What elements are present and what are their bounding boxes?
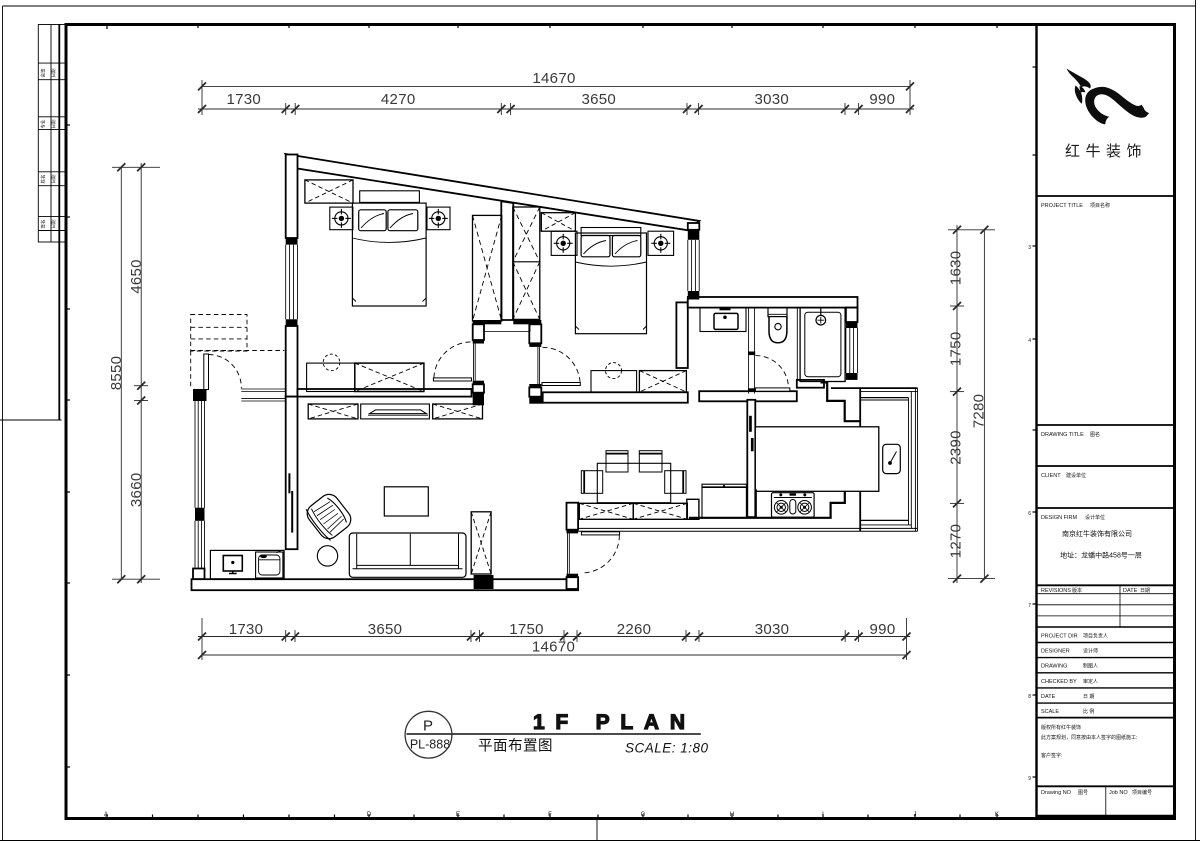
svg-text:项目编号: 项目编号 [1132, 789, 1152, 796]
svg-text:4270: 4270 [381, 91, 416, 108]
svg-text:项目负责人: 项目负责人 [1083, 633, 1108, 640]
svg-text:1750: 1750 [948, 332, 965, 367]
svg-text:990: 990 [869, 91, 895, 108]
svg-text:2390: 2390 [948, 430, 965, 465]
svg-text:日 期: 日 期 [1083, 694, 1094, 700]
svg-text:审定人: 审定人 [1083, 678, 1098, 685]
svg-text:签名: 签名 [40, 220, 47, 229]
svg-text:客户签字:: 客户签字: [1041, 752, 1062, 759]
svg-text:6: 6 [1028, 511, 1031, 517]
svg-text:PROJECT TITLE: PROJECT TITLE [1041, 203, 1083, 209]
svg-text:4: 4 [1028, 338, 1031, 344]
svg-text:3660: 3660 [128, 473, 145, 508]
svg-text:1730: 1730 [229, 621, 264, 638]
svg-text:制图人: 制图人 [1083, 663, 1098, 670]
svg-text:14670: 14670 [532, 639, 575, 656]
svg-text:平面布置图: 平面布置图 [478, 738, 553, 755]
svg-text:CLIENT: CLIENT [1041, 473, 1061, 479]
svg-text:版本: 版本 [1072, 587, 1082, 594]
svg-text:图名: 图名 [1090, 431, 1100, 438]
svg-text:地址：龙蟠中路458号一层: 地址：龙蟠中路458号一层 [1060, 551, 1142, 560]
svg-text:DRAWING: DRAWING [1041, 664, 1067, 670]
svg-text:990: 990 [870, 621, 896, 638]
svg-text:K: K [995, 812, 999, 818]
svg-text:南京红牛装饰有限公司: 南京红牛装饰有限公司 [1062, 529, 1132, 538]
svg-text:2260: 2260 [617, 621, 652, 638]
svg-text:DESIGN FIRM: DESIGN FIRM [1041, 515, 1077, 521]
svg-text:DATE: DATE [1041, 694, 1056, 700]
svg-text:H: H [730, 812, 734, 818]
svg-text:PL-888: PL-888 [410, 738, 450, 752]
svg-text:3650: 3650 [582, 91, 617, 108]
svg-text:4650: 4650 [128, 259, 145, 294]
svg-text:3: 3 [1028, 245, 1031, 251]
svg-text:专业: 专业 [40, 119, 47, 128]
svg-text:CHECKED BY: CHECKED BY [1041, 679, 1077, 685]
svg-text:D: D [367, 812, 372, 818]
svg-text:日期: 日期 [1140, 588, 1150, 594]
svg-text:REVISIONS: REVISIONS [1041, 588, 1071, 594]
svg-text:E: E [456, 812, 460, 818]
svg-text:DESIGNER: DESIGNER [1041, 649, 1070, 655]
svg-text:14670: 14670 [532, 70, 575, 87]
svg-text:J: J [914, 812, 917, 818]
svg-text:G: G [641, 812, 646, 818]
svg-text:SCALE: 1:80: SCALE: 1:80 [625, 741, 709, 756]
svg-text:1750: 1750 [509, 621, 544, 638]
svg-text:Drawing NO: Drawing NO [1041, 790, 1072, 796]
svg-text:3030: 3030 [755, 91, 790, 108]
svg-text:DRAWING TITLE: DRAWING TITLE [1041, 432, 1084, 438]
svg-text:P: P [423, 718, 433, 735]
svg-text:建设单位: 建设单位 [1066, 472, 1086, 479]
svg-text:3650: 3650 [368, 621, 403, 638]
svg-text:姓名: 姓名 [40, 175, 47, 184]
svg-text:会签: 会签 [40, 68, 47, 77]
svg-text:设计单位: 设计单位 [1085, 514, 1105, 521]
svg-text:F: F [548, 812, 552, 818]
svg-text:红牛装饰: 红牛装饰 [1065, 143, 1147, 160]
svg-text:8550: 8550 [108, 356, 125, 391]
svg-text:PROJECT DIR: PROJECT DIR [1041, 634, 1078, 640]
svg-text:9: 9 [1028, 776, 1031, 782]
svg-text:图号: 图号 [1078, 790, 1088, 796]
svg-text:8: 8 [1028, 694, 1031, 700]
svg-text:7: 7 [1028, 603, 1031, 609]
svg-text:7280: 7280 [971, 394, 988, 429]
svg-text:Job NO: Job NO [1109, 790, 1128, 796]
svg-text:此方案规划，同意按由本人签字的图纸施工:: 此方案规划，同意按由本人签字的图纸施工: [1041, 734, 1137, 741]
svg-text:SCALE: SCALE [1041, 709, 1059, 715]
svg-text:1270: 1270 [948, 524, 965, 559]
svg-text:设计师: 设计师 [1083, 648, 1098, 655]
svg-text:3030: 3030 [755, 621, 790, 638]
svg-text:1630: 1630 [948, 251, 965, 286]
svg-text:比 例: 比 例 [1083, 708, 1094, 715]
svg-text:1730: 1730 [227, 91, 262, 108]
svg-text:版权所有红牛装饰: 版权所有红牛装饰 [1041, 724, 1081, 731]
svg-text:DATE: DATE [1123, 588, 1138, 594]
svg-text:项目名称: 项目名称 [1090, 202, 1110, 209]
